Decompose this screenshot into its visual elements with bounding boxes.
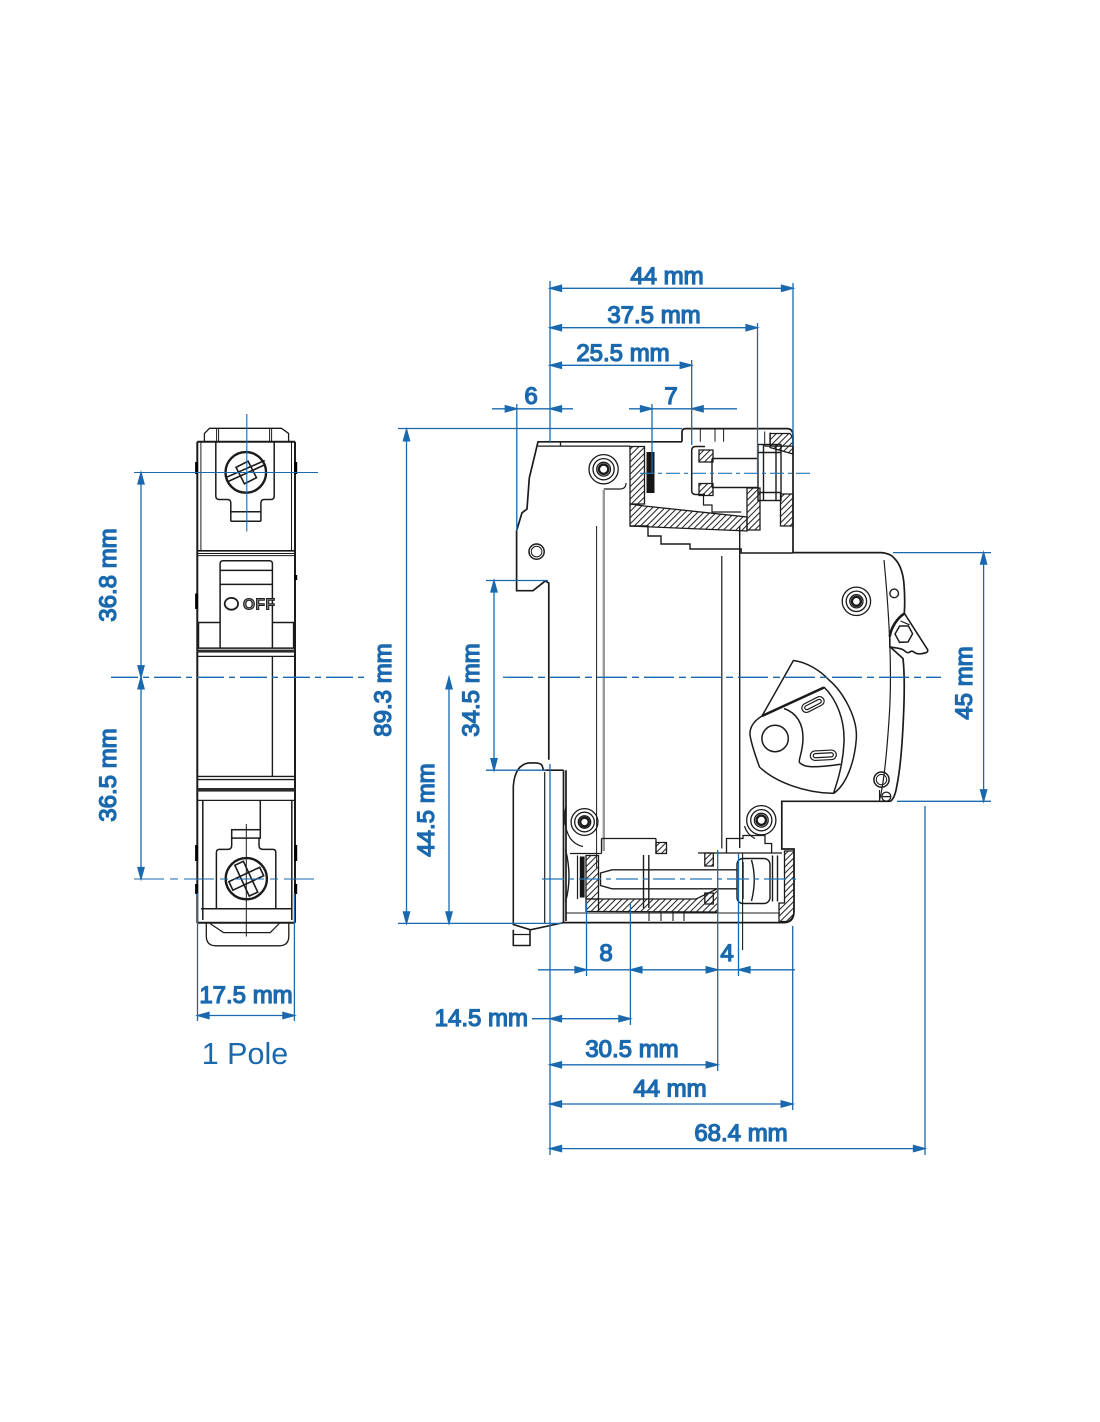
svg-text:30.5 mm: 30.5 mm xyxy=(585,1036,678,1063)
svg-text:34.5 mm: 34.5 mm xyxy=(458,643,485,736)
svg-text:8: 8 xyxy=(599,940,612,967)
svg-text:14.5 mm: 14.5 mm xyxy=(435,1005,528,1032)
svg-text:36.8 mm: 36.8 mm xyxy=(95,528,122,621)
svg-text:89.3 mm: 89.3 mm xyxy=(370,643,397,736)
svg-text:44 mm: 44 mm xyxy=(633,1076,706,1103)
svg-text:7: 7 xyxy=(664,383,677,410)
svg-text:4: 4 xyxy=(720,940,733,967)
svg-text:44 mm: 44 mm xyxy=(630,263,703,290)
svg-text:17.5 mm: 17.5 mm xyxy=(199,982,292,1009)
svg-text:45 mm: 45 mm xyxy=(951,646,978,719)
svg-text:25.5 mm: 25.5 mm xyxy=(576,340,669,367)
svg-text:OFF: OFF xyxy=(243,597,276,614)
svg-text:37.5 mm: 37.5 mm xyxy=(607,302,700,329)
svg-text:6: 6 xyxy=(524,383,537,410)
svg-text:1 Pole: 1 Pole xyxy=(202,1037,288,1071)
svg-text:44.5 mm: 44.5 mm xyxy=(413,763,440,856)
svg-text:36.5 mm: 36.5 mm xyxy=(95,728,122,821)
svg-text:68.4 mm: 68.4 mm xyxy=(694,1120,787,1147)
